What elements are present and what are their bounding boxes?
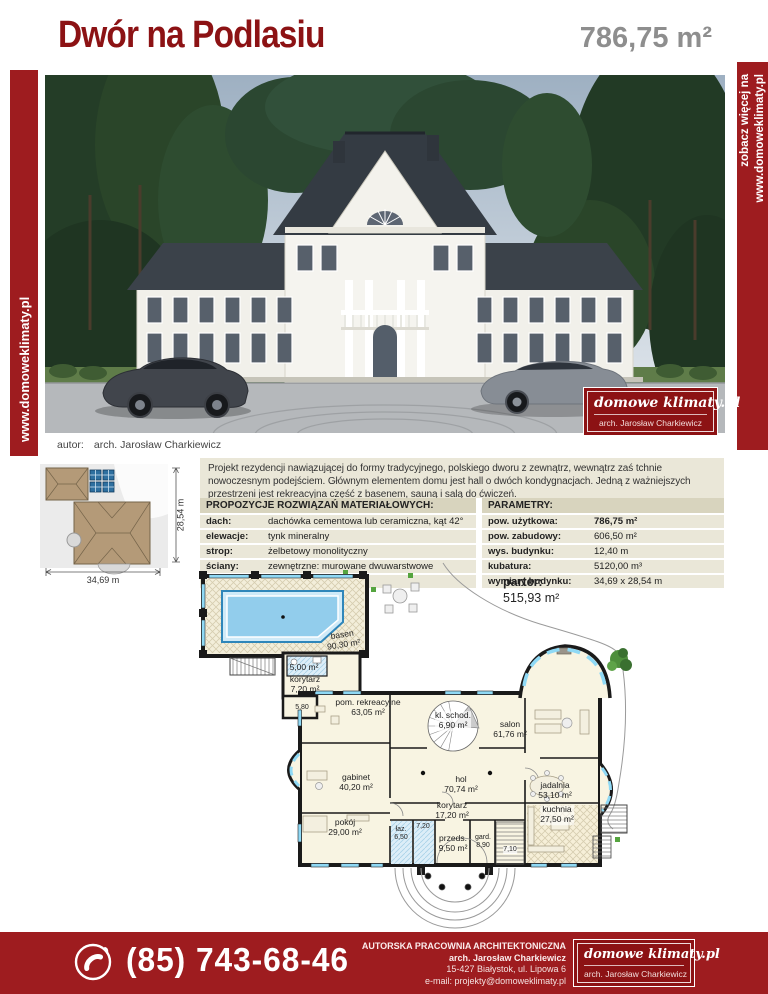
right-url-strip: zobacz więcej na www.domoweklimaty.pl bbox=[737, 62, 768, 450]
table-row: elewacje:tynk mineralny bbox=[200, 530, 476, 543]
room-label-gabinet: gabinet40,20 m² bbox=[339, 773, 373, 793]
right-strip-line2: www.domoweklimaty.pl bbox=[753, 74, 767, 450]
studio-street: 15-427 Białystok, ul. Lipowa 6 bbox=[330, 964, 566, 976]
caption-label: autor: bbox=[57, 439, 84, 451]
brand-author: arch. Jarosław Charkiewicz bbox=[594, 418, 707, 428]
total-area: 786,75 m² bbox=[580, 22, 712, 55]
flyer-page: Dwór na Podlasiu 786,75 m² www.domowekli… bbox=[0, 0, 768, 994]
room-label-hol: hol70,74 m² bbox=[444, 775, 478, 795]
room-label-przeds: przeds.9,50 m² bbox=[439, 834, 468, 854]
brand-name: domowe klimaty.pl bbox=[594, 395, 707, 415]
house-photo-art bbox=[45, 75, 725, 433]
right-strip-line1: zobacz więcej na bbox=[738, 74, 752, 450]
brand-author: arch. Jarosław Charkiewicz bbox=[584, 969, 684, 979]
photo-caption: autor:arch. Jarosław Charkiewicz bbox=[57, 439, 221, 451]
phone-number: (85) 743-68-46 bbox=[126, 941, 349, 979]
table-row: strop:żelbetowy monolityczny bbox=[200, 545, 476, 558]
phone-icon bbox=[72, 941, 114, 983]
table-row: pow. użytkowa:786,75 m² bbox=[482, 515, 724, 528]
room-label: 7,20 bbox=[416, 823, 430, 831]
studio-name: AUTORSKA PRACOWNIA ARCHITEKTONICZNA bbox=[330, 941, 566, 953]
room-label-kl-schod: kl. schod.6,90 m² bbox=[435, 711, 471, 731]
studio-email: e-mail: projekty@domoweklimaty.pl bbox=[330, 976, 566, 988]
siteplan-height-dim: 28,54 m bbox=[175, 499, 185, 532]
tree-icon bbox=[607, 648, 632, 671]
room-label-kuchnia: kuchnia27,50 m² bbox=[540, 805, 574, 825]
room-label-korytarz1: korytarz7,20 m² bbox=[290, 675, 320, 695]
room-label: 7,10 bbox=[503, 846, 517, 854]
footer-address: AUTORSKA PRACOWNIA ARCHITEKTONICZNA arch… bbox=[330, 941, 566, 988]
materials-header: PROPOZYCJE ROZWIĄZAŃ MATERIAŁOWYCH: bbox=[200, 498, 476, 513]
left-strip-url: www.domoweklimaty.pl bbox=[17, 70, 32, 442]
brand-logo-footer: domowe klimaty.pl arch. Jarosław Charkie… bbox=[573, 939, 695, 987]
architect-name: arch. Jarosław Charkiewicz bbox=[330, 953, 566, 965]
site-plan: 34,69 m 28,54 m bbox=[38, 462, 190, 590]
brand-name: domowe klimaty.pl bbox=[584, 947, 684, 966]
table-row: wys. budynku:12,40 m bbox=[482, 545, 724, 558]
room-label-pom-rekreacyjne: pom. rekreacyjne63,05 m² bbox=[335, 698, 400, 718]
left-url-strip: www.domoweklimaty.pl bbox=[10, 70, 38, 456]
room-label-gard: gard.8,90 bbox=[475, 834, 491, 850]
table-row: pow. zabudowy:606,50 m² bbox=[482, 530, 724, 543]
room-label-pokoj: pokój29,00 m² bbox=[328, 818, 362, 838]
page-title: Dwór na Podlasiu bbox=[58, 14, 324, 57]
room-label-laz: łaz.6,50 bbox=[394, 826, 408, 842]
caption-value: arch. Jarosław Charkiewicz bbox=[94, 439, 221, 451]
room-label: 5,80 bbox=[295, 704, 309, 712]
room-label-korytarz2: korytarz17,20 m² bbox=[435, 801, 469, 821]
room-label: 5,00 m² bbox=[290, 663, 319, 673]
brand-logo-photo: domowe klimaty.pl arch. Jarosław Charkie… bbox=[583, 387, 718, 436]
footer-bar: (85) 743-68-46 AUTORSKA PRACOWNIA ARCHIT… bbox=[0, 932, 768, 994]
floor-plan: parter: 515,93 m² basen90,30 m² 5,00 m² … bbox=[195, 558, 760, 935]
room-label-jadalnia: jadalnia53,10 m² bbox=[538, 781, 572, 801]
house-photo bbox=[45, 75, 725, 433]
table-row: dach:dachówka cementowa lub ceramiczna, … bbox=[200, 515, 476, 528]
room-label-salon: salon61,76 m² bbox=[493, 720, 527, 740]
siteplan-width-dim: 34,69 m bbox=[38, 575, 168, 585]
site-plan-art bbox=[38, 462, 190, 590]
project-description: Projekt rezydencji nawiązującej do formy… bbox=[200, 458, 724, 498]
floor-plan-art bbox=[195, 558, 760, 935]
parameters-header: PARAMETRY: bbox=[482, 498, 724, 513]
floor-title: parter: 515,93 m² bbox=[503, 574, 559, 607]
